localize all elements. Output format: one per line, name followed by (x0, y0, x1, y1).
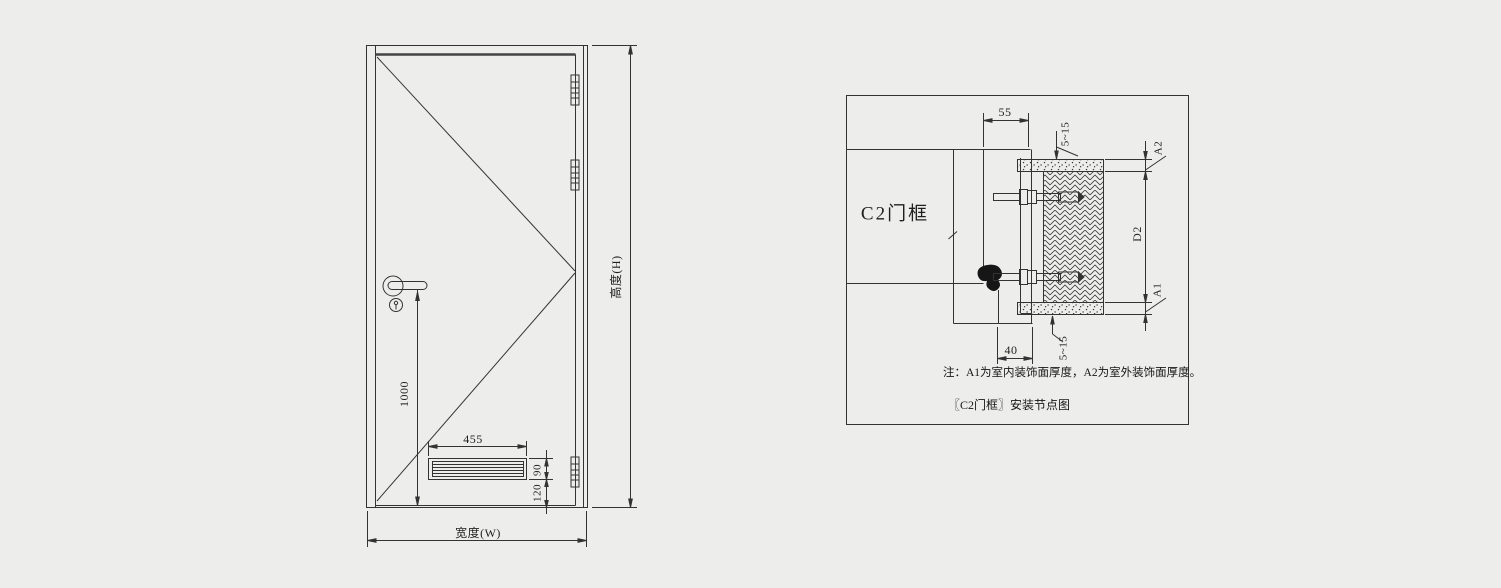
door-elevation-drawing (367, 46, 638, 548)
swing-line-top (377, 57, 575, 271)
detail-note: 注：A1为室内装饰面厚度，A2为室外装饰面厚度。 (943, 368, 1201, 380)
frame-face-dim-label: 55 (999, 106, 1012, 118)
louver-width-dim-label: 455 (463, 433, 483, 445)
door-width-label: 宽度(W) (455, 527, 501, 539)
frame-depth-dim-label: 40 (1005, 344, 1018, 356)
louver-height-dim-label: 90 (533, 464, 544, 476)
a2-leader (1146, 156, 1167, 170)
inside-finish-strip (1018, 303, 1104, 315)
frame-profile (949, 150, 1033, 324)
wall-section (1044, 172, 1104, 303)
louver-offset-dimensions (529, 450, 553, 514)
outside-finish-dim-label: A2 (1154, 141, 1165, 155)
cad-linework (0, 0, 1501, 588)
frame-title-label: C2门框 (861, 205, 929, 224)
louver-bottom-offset-dim-label: 120 (533, 484, 544, 502)
louver-vent (429, 459, 527, 480)
handle-height-dim-label: 1000 (398, 381, 410, 407)
handle-height-dimension (416, 292, 420, 506)
top-gap-dim-label: 5~15 (1061, 122, 1072, 146)
a1-leader (1146, 298, 1167, 312)
outside-finish-strip (1018, 160, 1104, 172)
cad-sheet: 宽度(W) 高度(H) 1000 455 90 120 C2门框 55 5~15… (0, 0, 1501, 588)
wall-thickness-dim-label: D2 (1131, 226, 1143, 242)
door-height-label: 高度(H) (610, 255, 622, 298)
bottom-gap-dim-label: 5~15 (1059, 336, 1070, 360)
detail-caption: 〖C2门框〗安装节点图 (948, 399, 1070, 411)
seal-gasket (978, 265, 1002, 291)
keyhole-escutcheon (390, 299, 403, 312)
inside-finish-dim-label: A1 (1153, 283, 1164, 297)
door-handle (383, 276, 427, 296)
